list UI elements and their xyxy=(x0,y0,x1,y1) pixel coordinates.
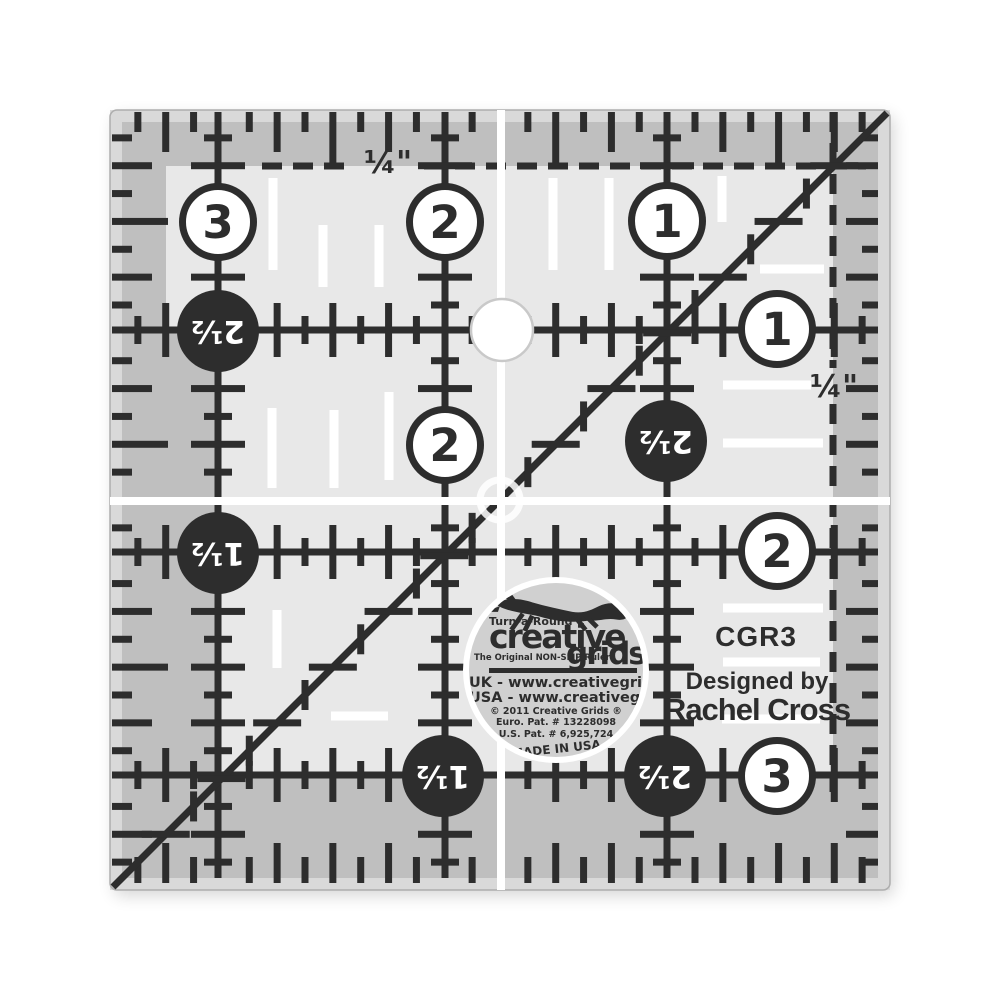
white-measure-circle: 1 xyxy=(628,182,706,260)
black-measure-circle: 2½ xyxy=(177,290,259,372)
black-measure-circle: 2½ xyxy=(625,400,707,482)
black-measure-circle: 1½ xyxy=(177,512,259,594)
white-measure-circle: 3 xyxy=(179,183,257,261)
white-measure-circle: 2 xyxy=(406,406,484,484)
black-measure-circle: 2½ xyxy=(624,735,706,817)
uk-website: UK - www.creativegrids.com xyxy=(469,675,643,691)
creative-grids-logo: Turn-a-Round™ creative grids® The Origin… xyxy=(463,577,649,763)
white-measure-circle: 2 xyxy=(738,512,816,590)
white-measure-circle: 1 xyxy=(738,290,816,368)
hanging-hole xyxy=(471,299,533,361)
quarter-inch-label-right: ¼" xyxy=(810,369,858,405)
designer-name: Rachel Cross xyxy=(664,692,850,728)
black-measure-circle: 1½ xyxy=(402,735,484,817)
euro-patent-line: Euro. Pat. # 13228098 xyxy=(469,717,643,728)
brand-tagline: The Original NON-SLIP Ruler xyxy=(474,653,610,663)
white-measure-circle: 3 xyxy=(738,737,816,815)
white-measure-circle: 2 xyxy=(406,183,484,261)
quarter-inch-label-top: ¼" xyxy=(364,145,412,181)
model-code: CGR3 xyxy=(715,621,797,653)
copyright-line: © 2011 Creative Grids ® xyxy=(469,706,643,717)
usa-website: USA - www.creativegridsusa.com xyxy=(469,690,643,706)
logo-divider xyxy=(489,668,637,673)
ruler-graphics xyxy=(0,0,1000,1000)
ruler-photo: ¼" ¼" CGR3 Designed by Rachel Cross Turn… xyxy=(0,0,1000,1000)
